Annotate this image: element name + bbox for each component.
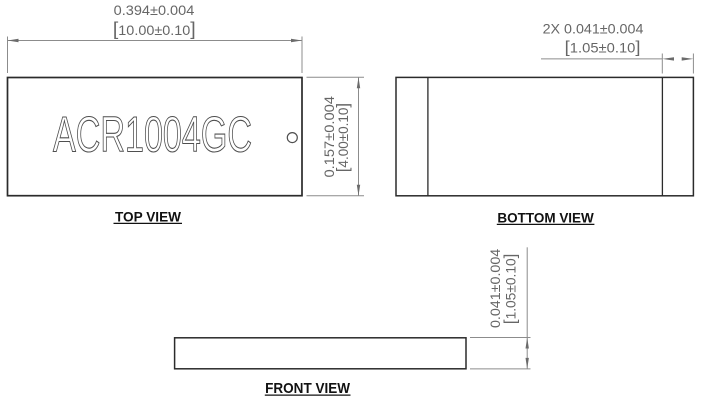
svg-text:0.394±0.004: 0.394±0.004 [114,3,195,18]
svg-text:[4.00±0.10]: [4.00±0.10] [333,103,352,172]
svg-text:2X 0.041±0.004: 2X 0.041±0.004 [543,22,644,37]
svg-text:TOP VIEW: TOP VIEW [115,209,181,224]
svg-text:[1.05±0.10]: [1.05±0.10] [565,38,641,57]
svg-text:ACR1004GC: ACR1004GC [53,107,252,163]
svg-text:[1.05±0.10]: [1.05±0.10] [500,254,519,325]
svg-text:0.041±0.004: 0.041±0.004 [488,248,503,328]
svg-text:FRONT VIEW: FRONT VIEW [265,380,351,397]
